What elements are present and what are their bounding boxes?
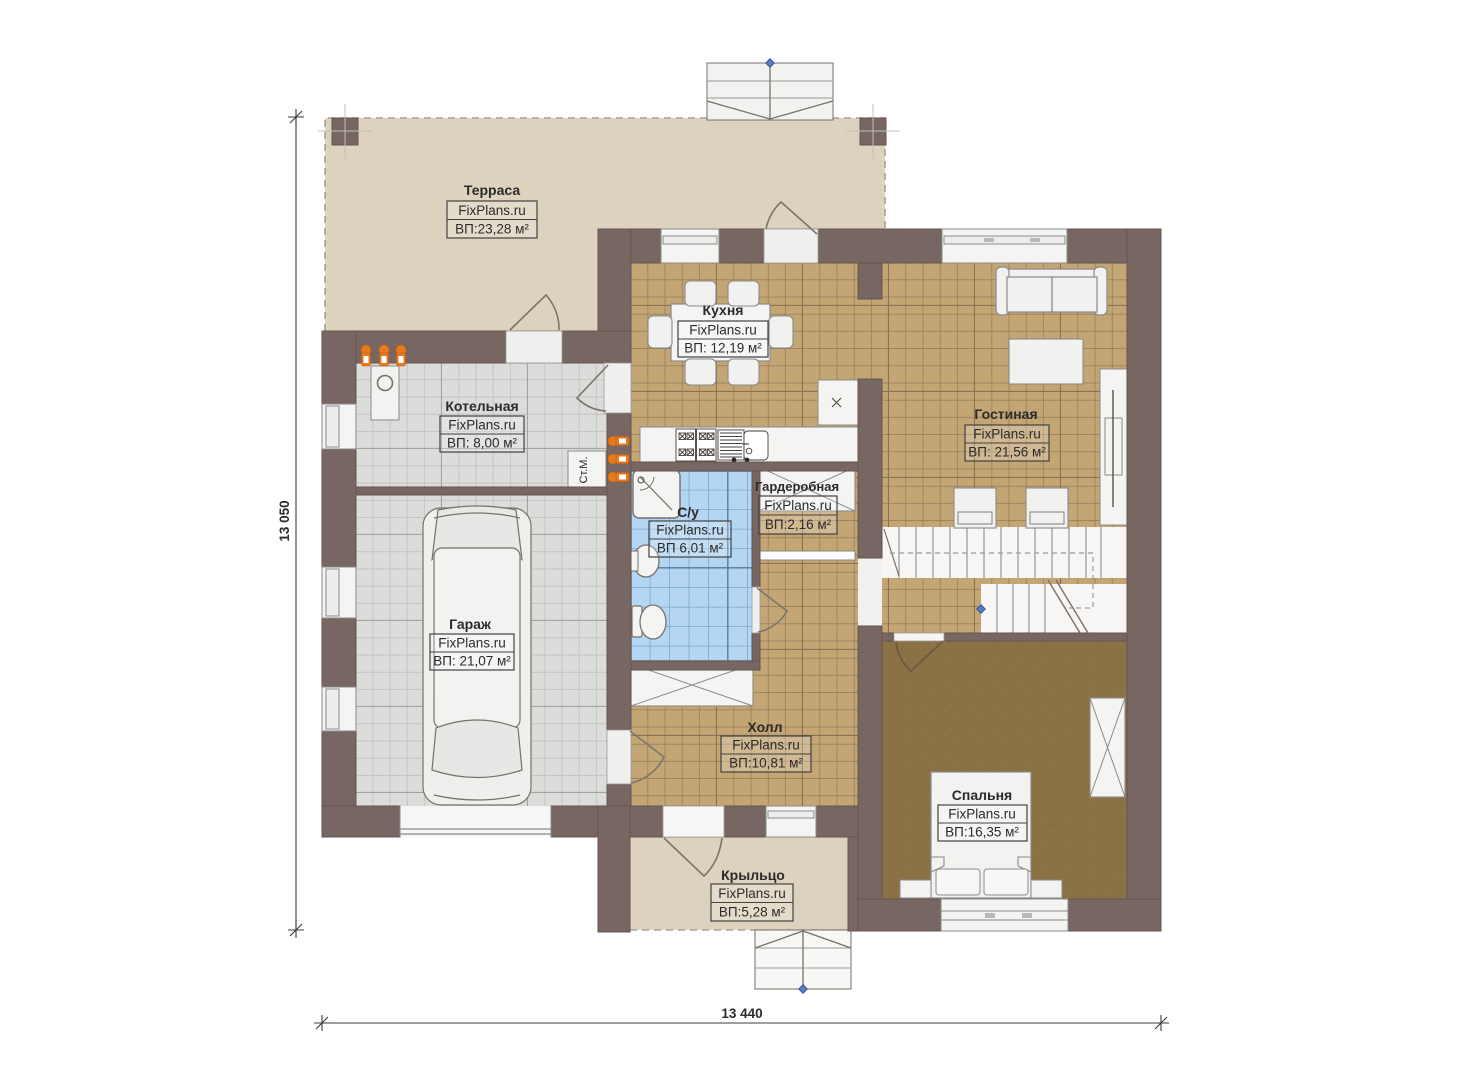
- svg-text:ВП:2,16 м²: ВП:2,16 м²: [765, 517, 832, 532]
- svg-text:Холл: Холл: [747, 719, 782, 735]
- svg-text:ВП:16,35 м²: ВП:16,35 м²: [945, 825, 1019, 840]
- svg-text:FixPlans.ru: FixPlans.ru: [718, 886, 786, 901]
- svg-text:FixPlans.ru: FixPlans.ru: [458, 203, 526, 218]
- svg-text:ВП:5,28 м²: ВП:5,28 м²: [719, 905, 786, 920]
- svg-text:Гардеробная: Гардеробная: [755, 479, 839, 494]
- svg-text:FixPlans.ru: FixPlans.ru: [438, 636, 506, 651]
- svg-text:ВП 6,01 м²: ВП 6,01 м²: [657, 541, 724, 556]
- svg-text:Спальня: Спальня: [952, 787, 1012, 803]
- svg-text:13 050: 13 050: [277, 500, 292, 541]
- svg-text:ВП: 12,19 м²: ВП: 12,19 м²: [684, 341, 762, 356]
- svg-text:Кухня: Кухня: [703, 302, 744, 318]
- svg-text:ВП: 21,56 м²: ВП: 21,56 м²: [968, 445, 1046, 460]
- svg-text:ВП:23,28 м²: ВП:23,28 м²: [455, 222, 529, 237]
- svg-text:ВП: 21,07 м²: ВП: 21,07 м²: [433, 654, 511, 669]
- svg-text:ВП: 8,00 м²: ВП: 8,00 м²: [447, 436, 518, 451]
- svg-text:Крыльцо: Крыльцо: [721, 867, 785, 883]
- svg-text:ВП:10,81 м²: ВП:10,81 м²: [729, 756, 803, 771]
- svg-text:FixPlans.ru: FixPlans.ru: [656, 523, 724, 538]
- svg-text:FixPlans.ru: FixPlans.ru: [732, 738, 800, 753]
- svg-text:С/у: С/у: [677, 504, 699, 520]
- svg-text:Гостиная: Гостиная: [974, 406, 1037, 422]
- svg-text:FixPlans.ru: FixPlans.ru: [448, 418, 516, 433]
- svg-text:FixPlans.ru: FixPlans.ru: [948, 807, 1016, 822]
- svg-text:Гараж: Гараж: [449, 616, 492, 632]
- svg-text:FixPlans.ru: FixPlans.ru: [973, 427, 1041, 442]
- svg-text:Ст.М.: Ст.М.: [578, 456, 590, 483]
- svg-text:FixPlans.ru: FixPlans.ru: [689, 323, 757, 338]
- svg-text:Котельная: Котельная: [445, 398, 518, 414]
- svg-text:13 440: 13 440: [721, 1006, 762, 1021]
- svg-text:Терраса: Терраса: [464, 182, 520, 198]
- svg-text:FixPlans.ru: FixPlans.ru: [764, 498, 832, 513]
